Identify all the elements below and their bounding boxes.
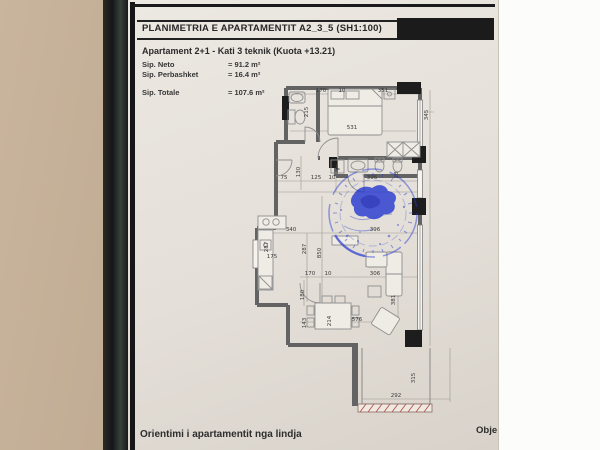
photographed-floorplan: { "photo": { "background_left_color": "#…	[0, 0, 600, 450]
approval-stamp	[329, 169, 417, 257]
dimension-label: 306	[370, 271, 381, 277]
dimension-label: 215	[304, 106, 310, 117]
walls	[257, 88, 420, 406]
dimension-label: 130	[296, 166, 302, 177]
dimension-label: 175	[267, 254, 278, 260]
dimension-label: 340	[286, 227, 297, 233]
dimension-label: 287	[302, 243, 308, 254]
dimension-label: 170	[316, 88, 327, 94]
dimension-label: 381	[391, 295, 397, 306]
dimension-label: 10	[325, 271, 332, 277]
dining-table	[307, 296, 359, 329]
hatched-parapet	[358, 404, 432, 412]
dimension-label: 292	[391, 393, 402, 399]
balcony	[358, 348, 432, 412]
dimension-label: 10	[339, 88, 346, 94]
bed	[328, 89, 395, 135]
armchair	[371, 307, 400, 336]
dimension-label: 75	[281, 175, 288, 181]
dimension-label: 576	[352, 317, 363, 323]
bathroom-mid-fixtures	[331, 158, 402, 173]
dimension-label: 180	[300, 289, 306, 300]
dimension-label: 351	[378, 88, 389, 94]
dimension-label: 125	[311, 175, 322, 181]
dimension-label: 214	[327, 315, 333, 326]
dimension-label: 531	[347, 125, 358, 131]
doors	[276, 127, 364, 303]
dimension-label: 850	[317, 247, 323, 258]
floor-plan-drawing: L 17010351215345531130751251039628340287…	[0, 0, 600, 450]
laundry-label: L	[335, 164, 340, 172]
dimension-label: 345	[424, 109, 430, 120]
dimension-label: 315	[411, 372, 417, 383]
dimension-label: 287	[264, 241, 270, 252]
bathroom-top-fixtures	[288, 92, 305, 124]
dimension-label: 10	[329, 175, 336, 181]
kitchen	[258, 216, 286, 290]
dimension-label: 170	[305, 271, 316, 277]
wardrobe	[387, 142, 420, 157]
dimension-label: 143	[302, 317, 308, 328]
